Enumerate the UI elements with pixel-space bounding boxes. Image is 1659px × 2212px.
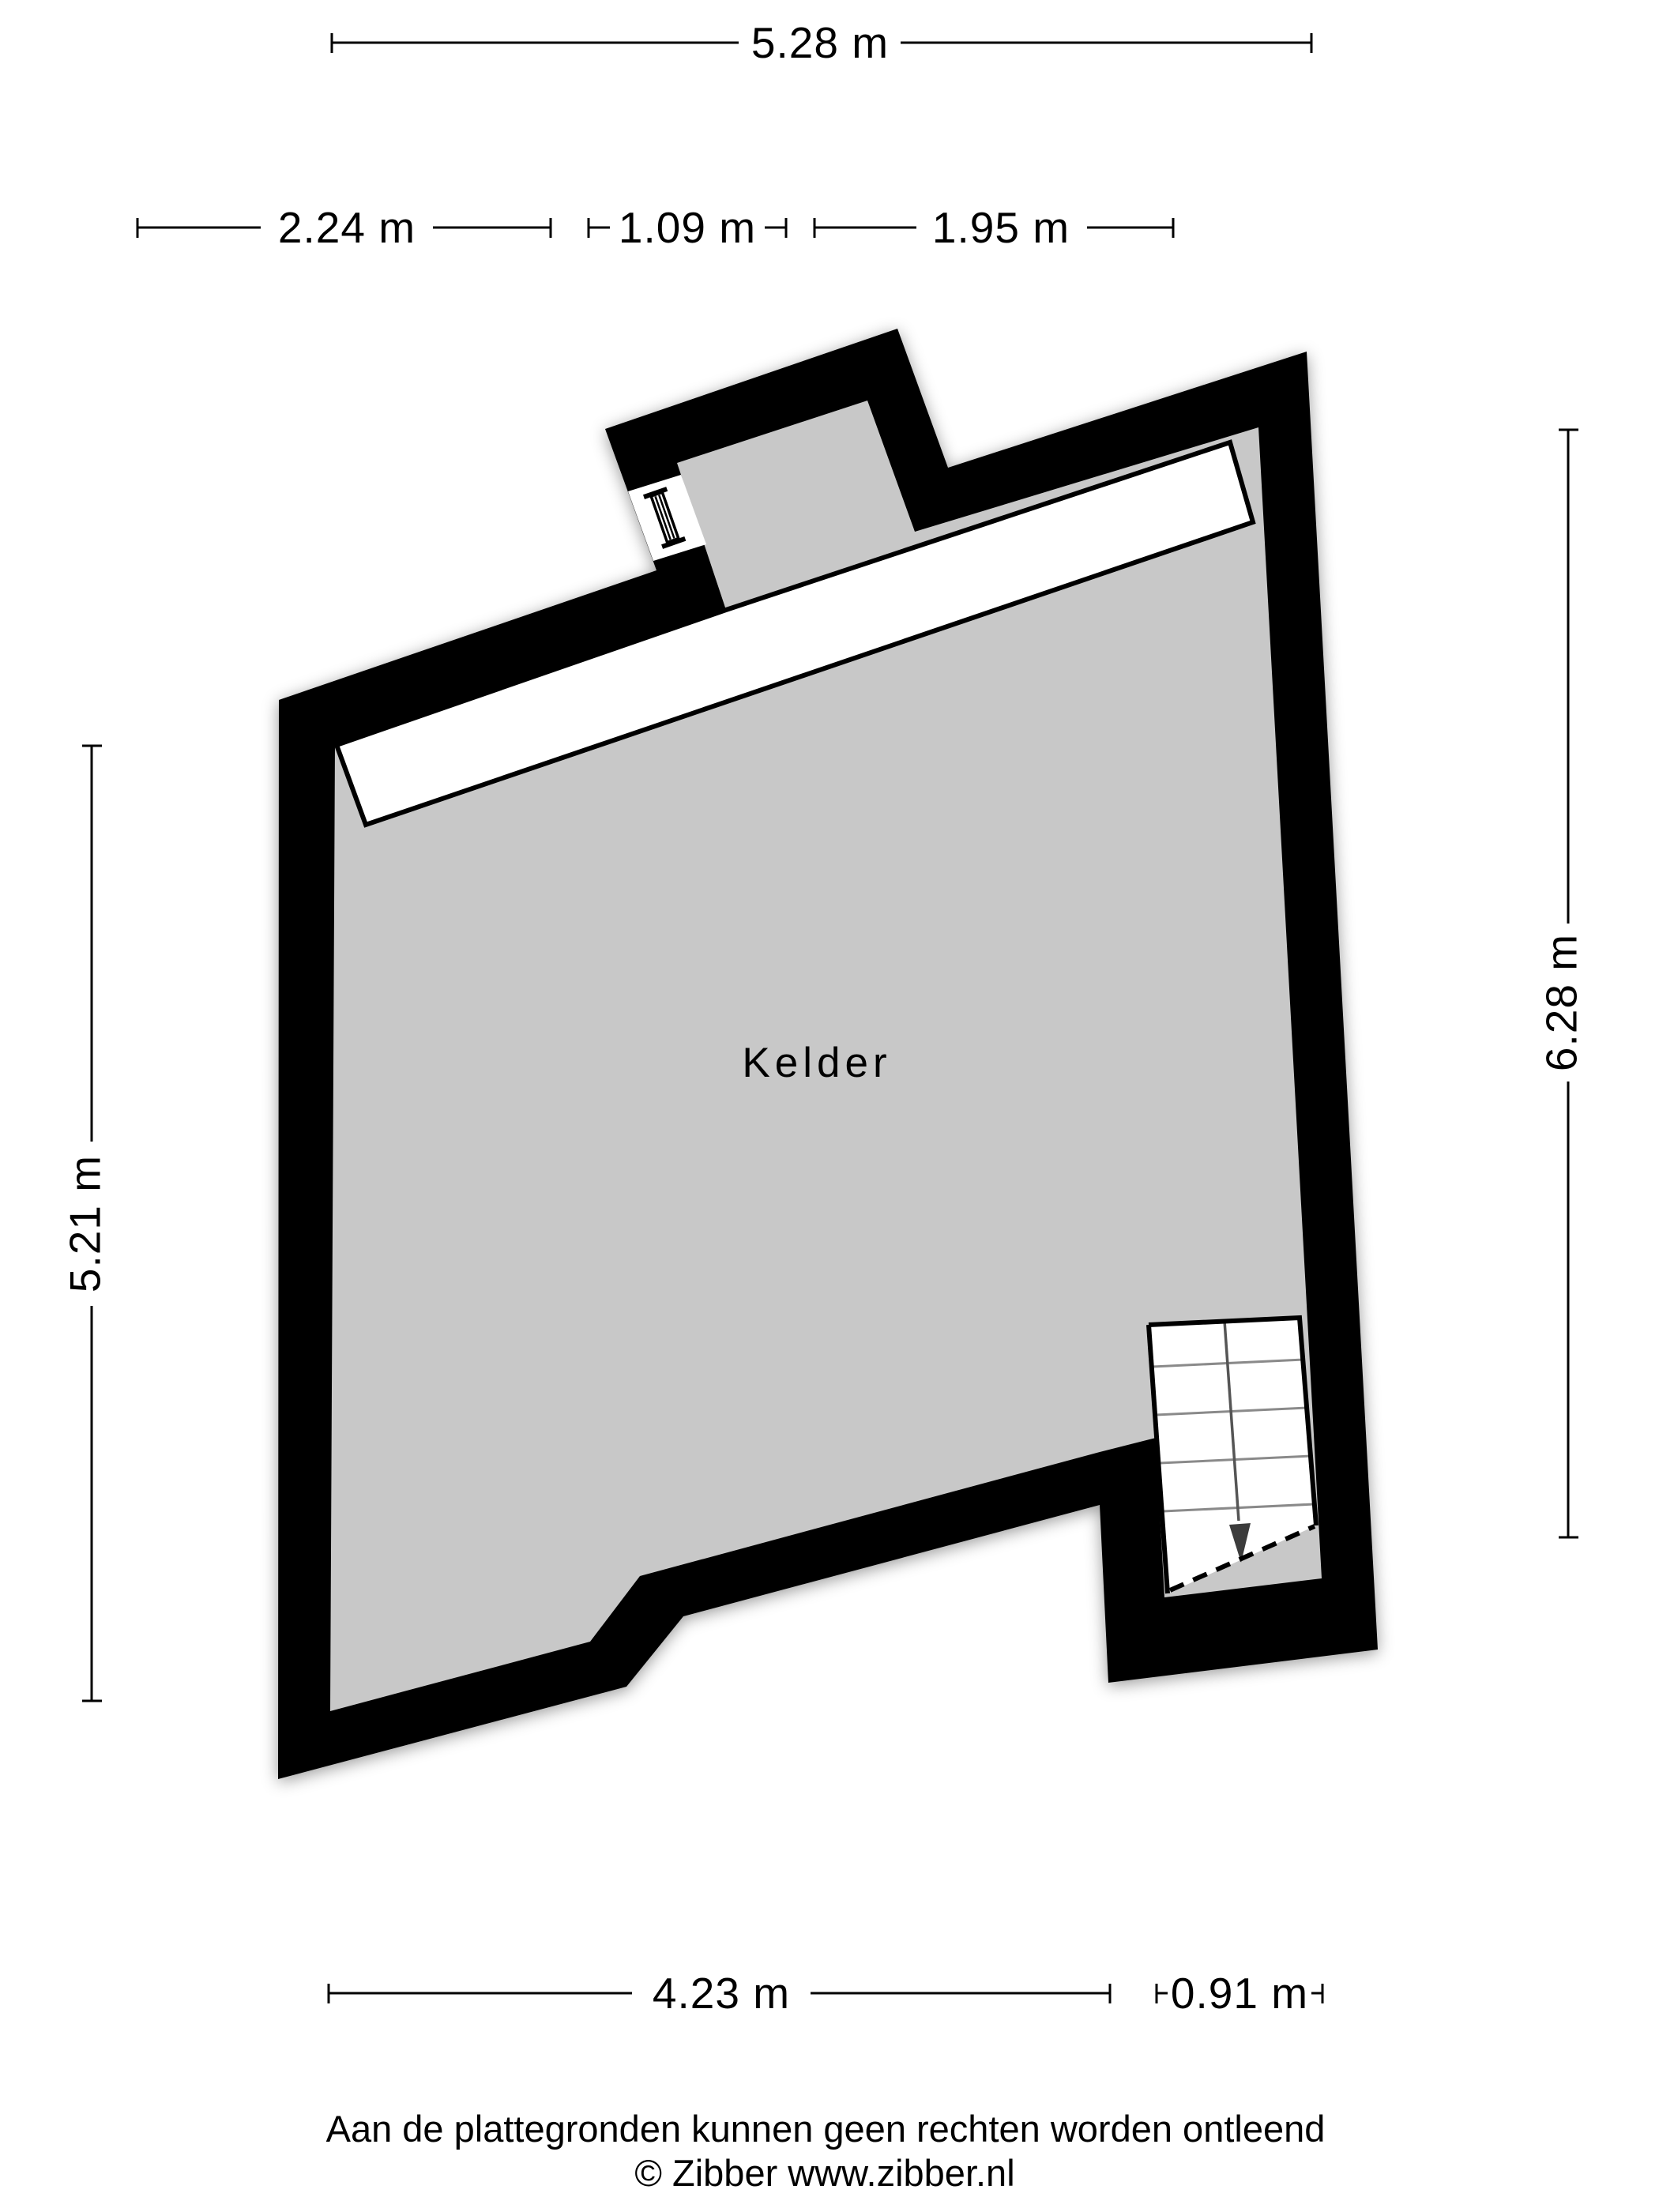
svg-text:Aan de plattegronden kunnen ge: Aan de plattegronden kunnen geen rechten… [326, 2108, 1326, 2150]
svg-text:2.24 m: 2.24 m [278, 203, 416, 252]
svg-text:0.91 m: 0.91 m [1171, 1969, 1308, 2018]
svg-text:5.21 m: 5.21 m [61, 1155, 110, 1292]
svg-text:5.28 m: 5.28 m [751, 18, 889, 67]
svg-text:1.09 m: 1.09 m [619, 203, 756, 252]
svg-text:6.28 m: 6.28 m [1537, 934, 1586, 1071]
svg-text:© Zibber www.zibber.nl: © Zibber www.zibber.nl [634, 2152, 1014, 2194]
svg-text:1.95 m: 1.95 m [932, 203, 1070, 252]
svg-text:Kelder: Kelder [742, 1040, 891, 1086]
svg-text:4.23 m: 4.23 m [653, 1969, 790, 2018]
